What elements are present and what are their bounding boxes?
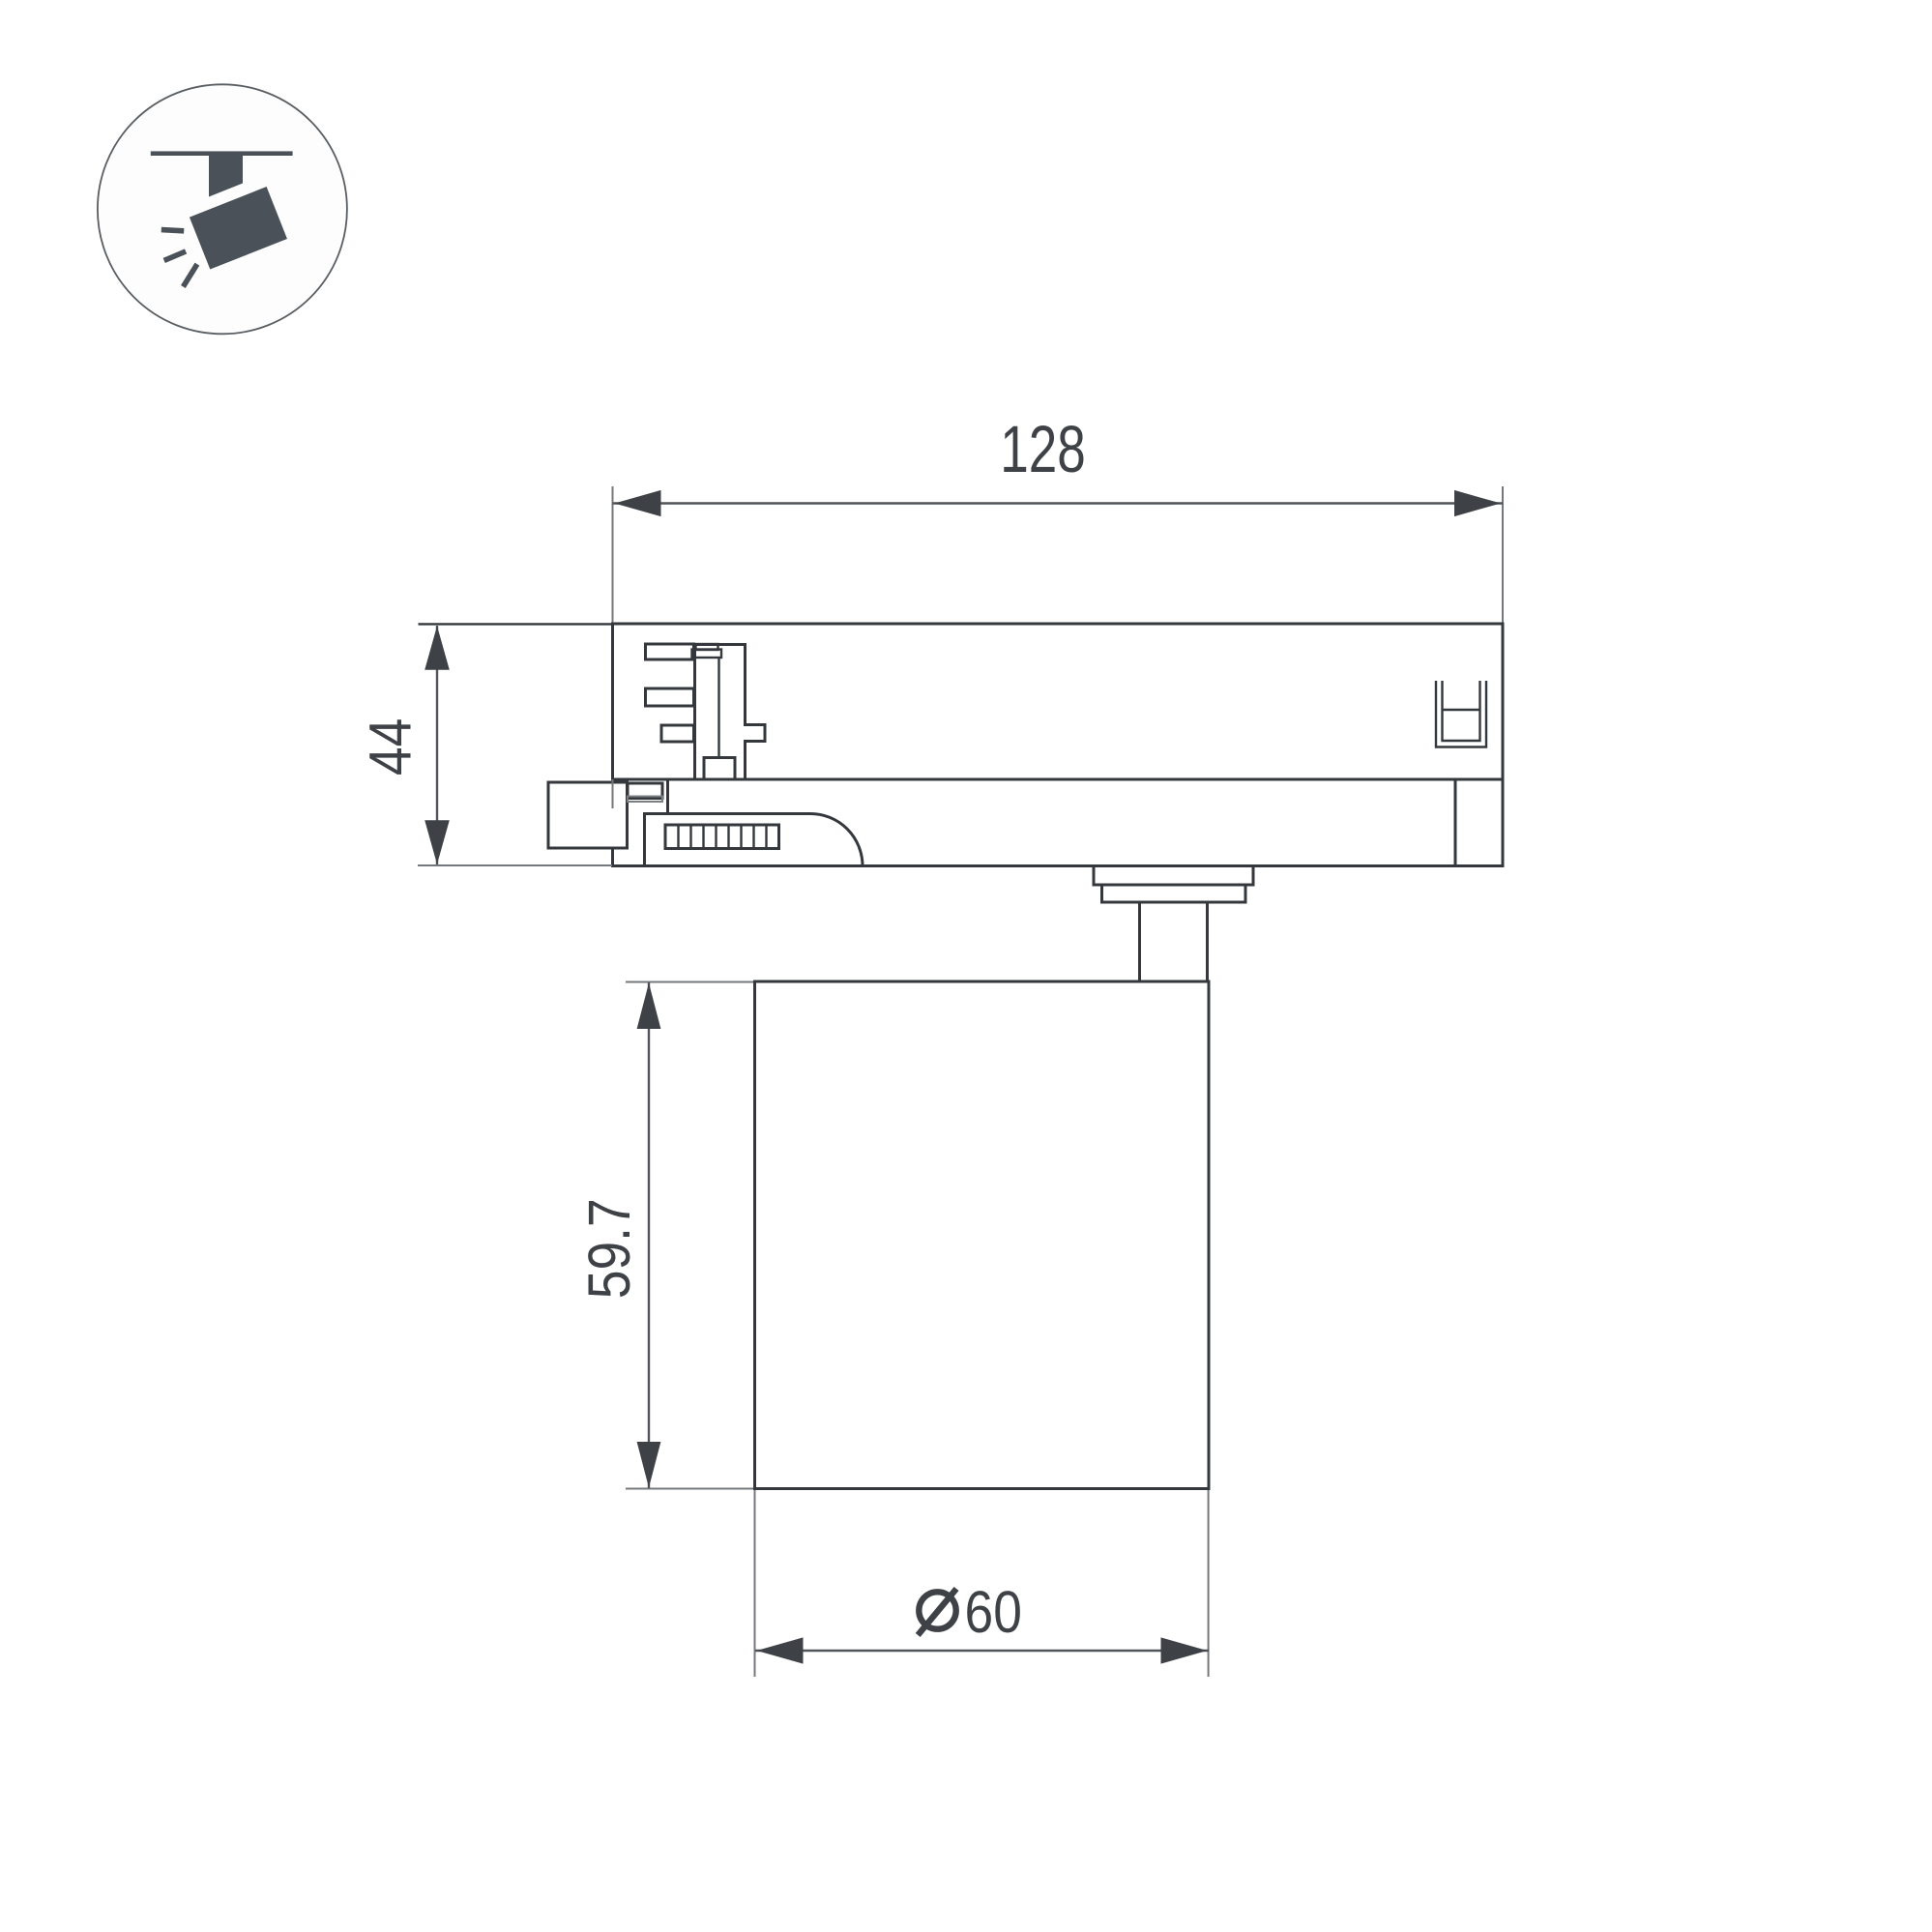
- svg-text:44: 44: [358, 718, 424, 776]
- svg-text:128: 128: [1000, 413, 1086, 486]
- svg-text:59.7: 59.7: [577, 1198, 643, 1299]
- svg-text:60: 60: [965, 1580, 1022, 1646]
